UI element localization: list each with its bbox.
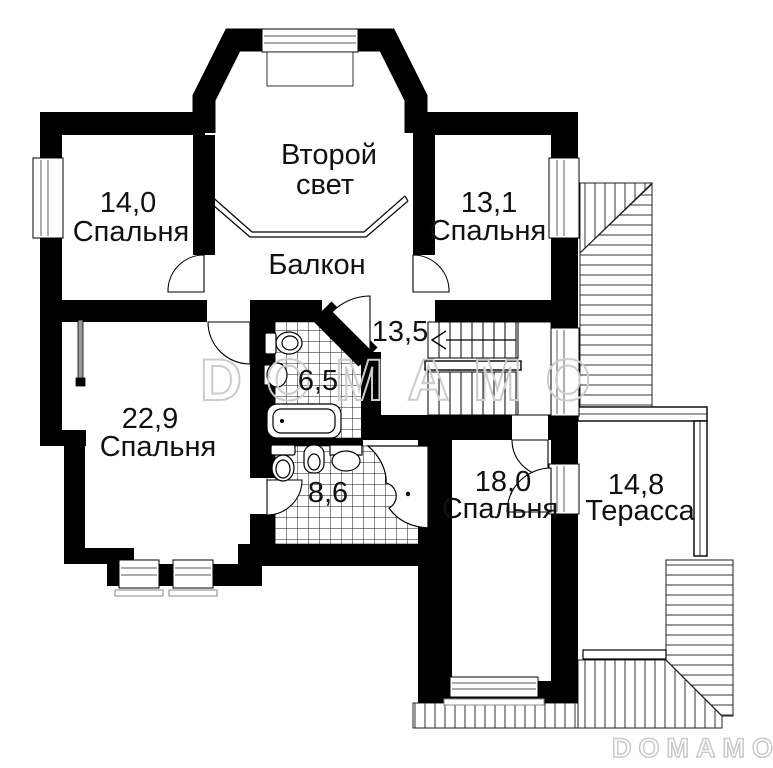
label-terrace-name: Терасса [585, 495, 695, 527]
sink-2-icon [330, 445, 362, 471]
label-bedroom-bottom-name: Спальня [442, 493, 559, 525]
label-bath-big-area: 8,6 [308, 477, 348, 509]
toilet-2-icon [271, 445, 295, 481]
floor-plan: DOMAMO DOMAMO Второй свет 14,0 Спальня 1… [0, 0, 773, 768]
label-bedroom-tl-name: Спальня [73, 216, 190, 248]
window-bay-left-2 [169, 560, 217, 596]
floor-plan-drawing: DOMAMO DOMAMO Второй свет 14,0 Спальня 1… [0, 0, 773, 768]
label-bedroom-left-name: Спальня [100, 431, 217, 463]
label-bath-small-area: 6,5 [298, 365, 338, 397]
label-hall-area: 13,5 [372, 316, 428, 348]
bidet-icon [304, 445, 324, 473]
label-bedroom-tl-area: 14,0 [100, 187, 156, 219]
watermark-center: DOMAMO [200, 348, 615, 413]
window-bay-left-1 [115, 560, 163, 596]
watermark-corner: DOMAMO [612, 733, 773, 763]
label-balcony: Балкон [268, 249, 365, 281]
window-bedroom-tl [33, 158, 63, 238]
window-bedroom-bottom [444, 677, 544, 705]
label-second-light-2: свет [296, 169, 354, 201]
window-bay-top [262, 29, 358, 86]
label-second-light-1: Второй [281, 139, 377, 171]
label-bedroom-tr-name: Спальня [430, 215, 547, 247]
window-bedroom-tr [549, 158, 579, 238]
